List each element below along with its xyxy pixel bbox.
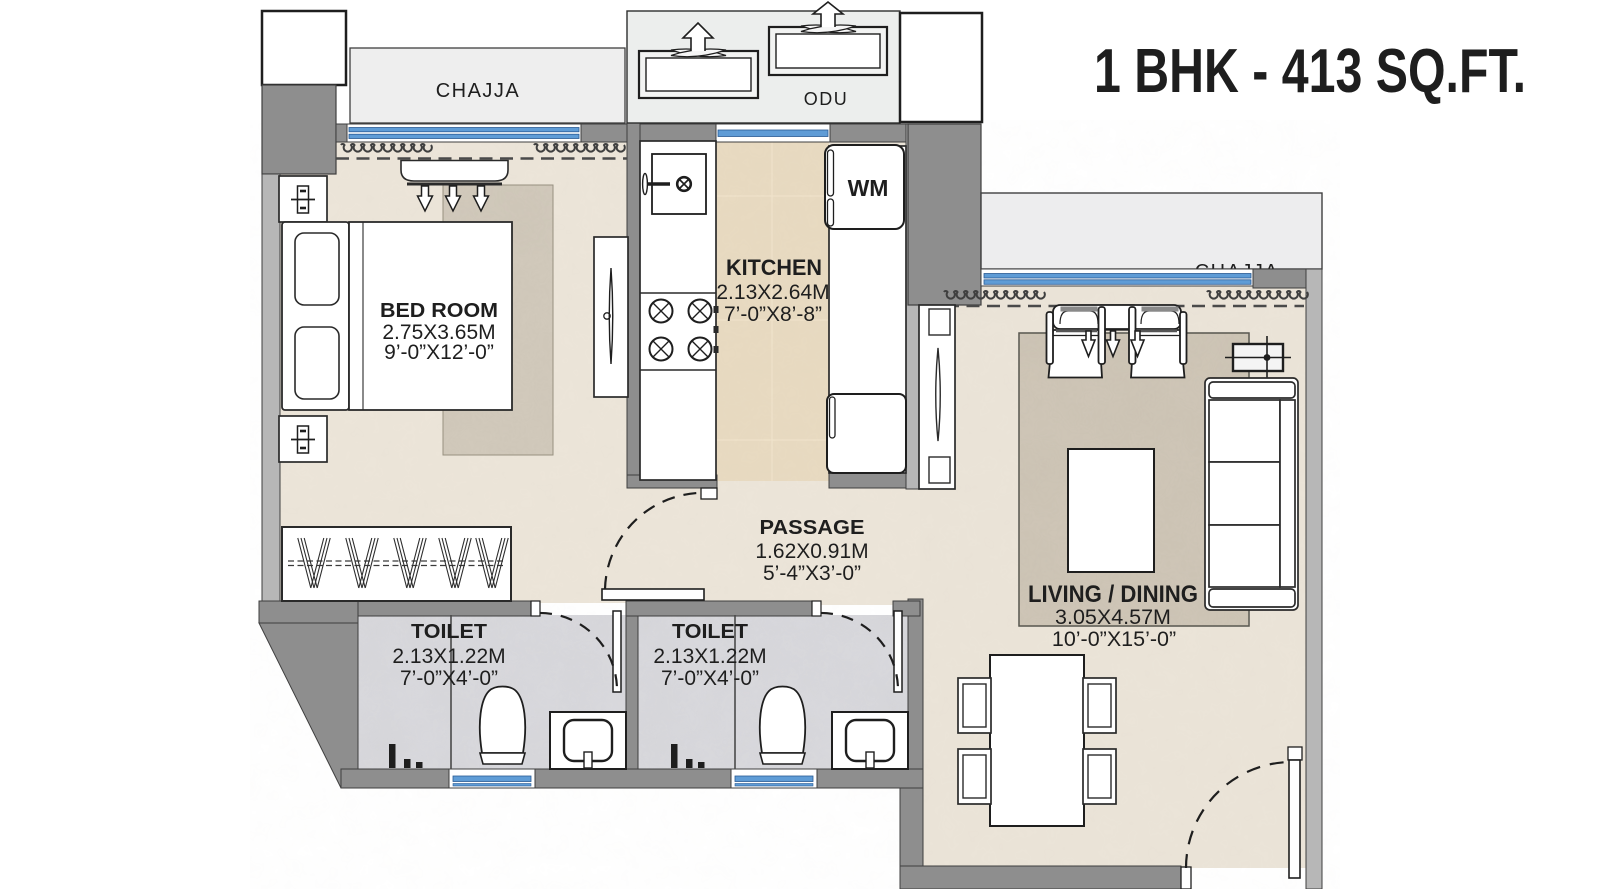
svg-text:TOILET: TOILET: [411, 621, 487, 643]
svg-text:7’-0”X4’-0”: 7’-0”X4’-0”: [400, 667, 498, 690]
svg-text:9’-0”X12’-0”: 9’-0”X12’-0”: [384, 341, 494, 364]
svg-text:2.13X1.22M: 2.13X1.22M: [653, 645, 766, 668]
svg-text:10’-0”X15’-0”: 10’-0”X15’-0”: [1052, 627, 1176, 651]
svg-text:2.13X1.22M: 2.13X1.22M: [392, 645, 505, 668]
svg-text:PASSAGE: PASSAGE: [760, 517, 865, 539]
svg-text:7’-0”X4’-0”: 7’-0”X4’-0”: [661, 667, 759, 690]
svg-text:LIVING / DINING: LIVING / DINING: [1028, 581, 1198, 608]
svg-text:5’-4”X3’-0”: 5’-4”X3’-0”: [763, 562, 861, 585]
svg-text:1.62X0.91M: 1.62X0.91M: [755, 540, 868, 563]
svg-text:CHAJJA: CHAJJA: [436, 80, 521, 102]
svg-text:1 BHK - 413 SQ.FT.: 1 BHK - 413 SQ.FT.: [1094, 37, 1526, 106]
svg-text:2.13X2.64M: 2.13X2.64M: [716, 281, 829, 304]
svg-text:TOILET: TOILET: [672, 621, 748, 643]
svg-text:ODU: ODU: [804, 89, 849, 109]
svg-text:KITCHEN: KITCHEN: [726, 255, 822, 280]
svg-text:WM: WM: [848, 175, 889, 201]
svg-text:3.05X4.57M: 3.05X4.57M: [1055, 605, 1171, 629]
svg-text:7’-0”X8’-8”: 7’-0”X8’-8”: [724, 303, 822, 326]
svg-text:BED ROOM: BED ROOM: [380, 300, 498, 322]
